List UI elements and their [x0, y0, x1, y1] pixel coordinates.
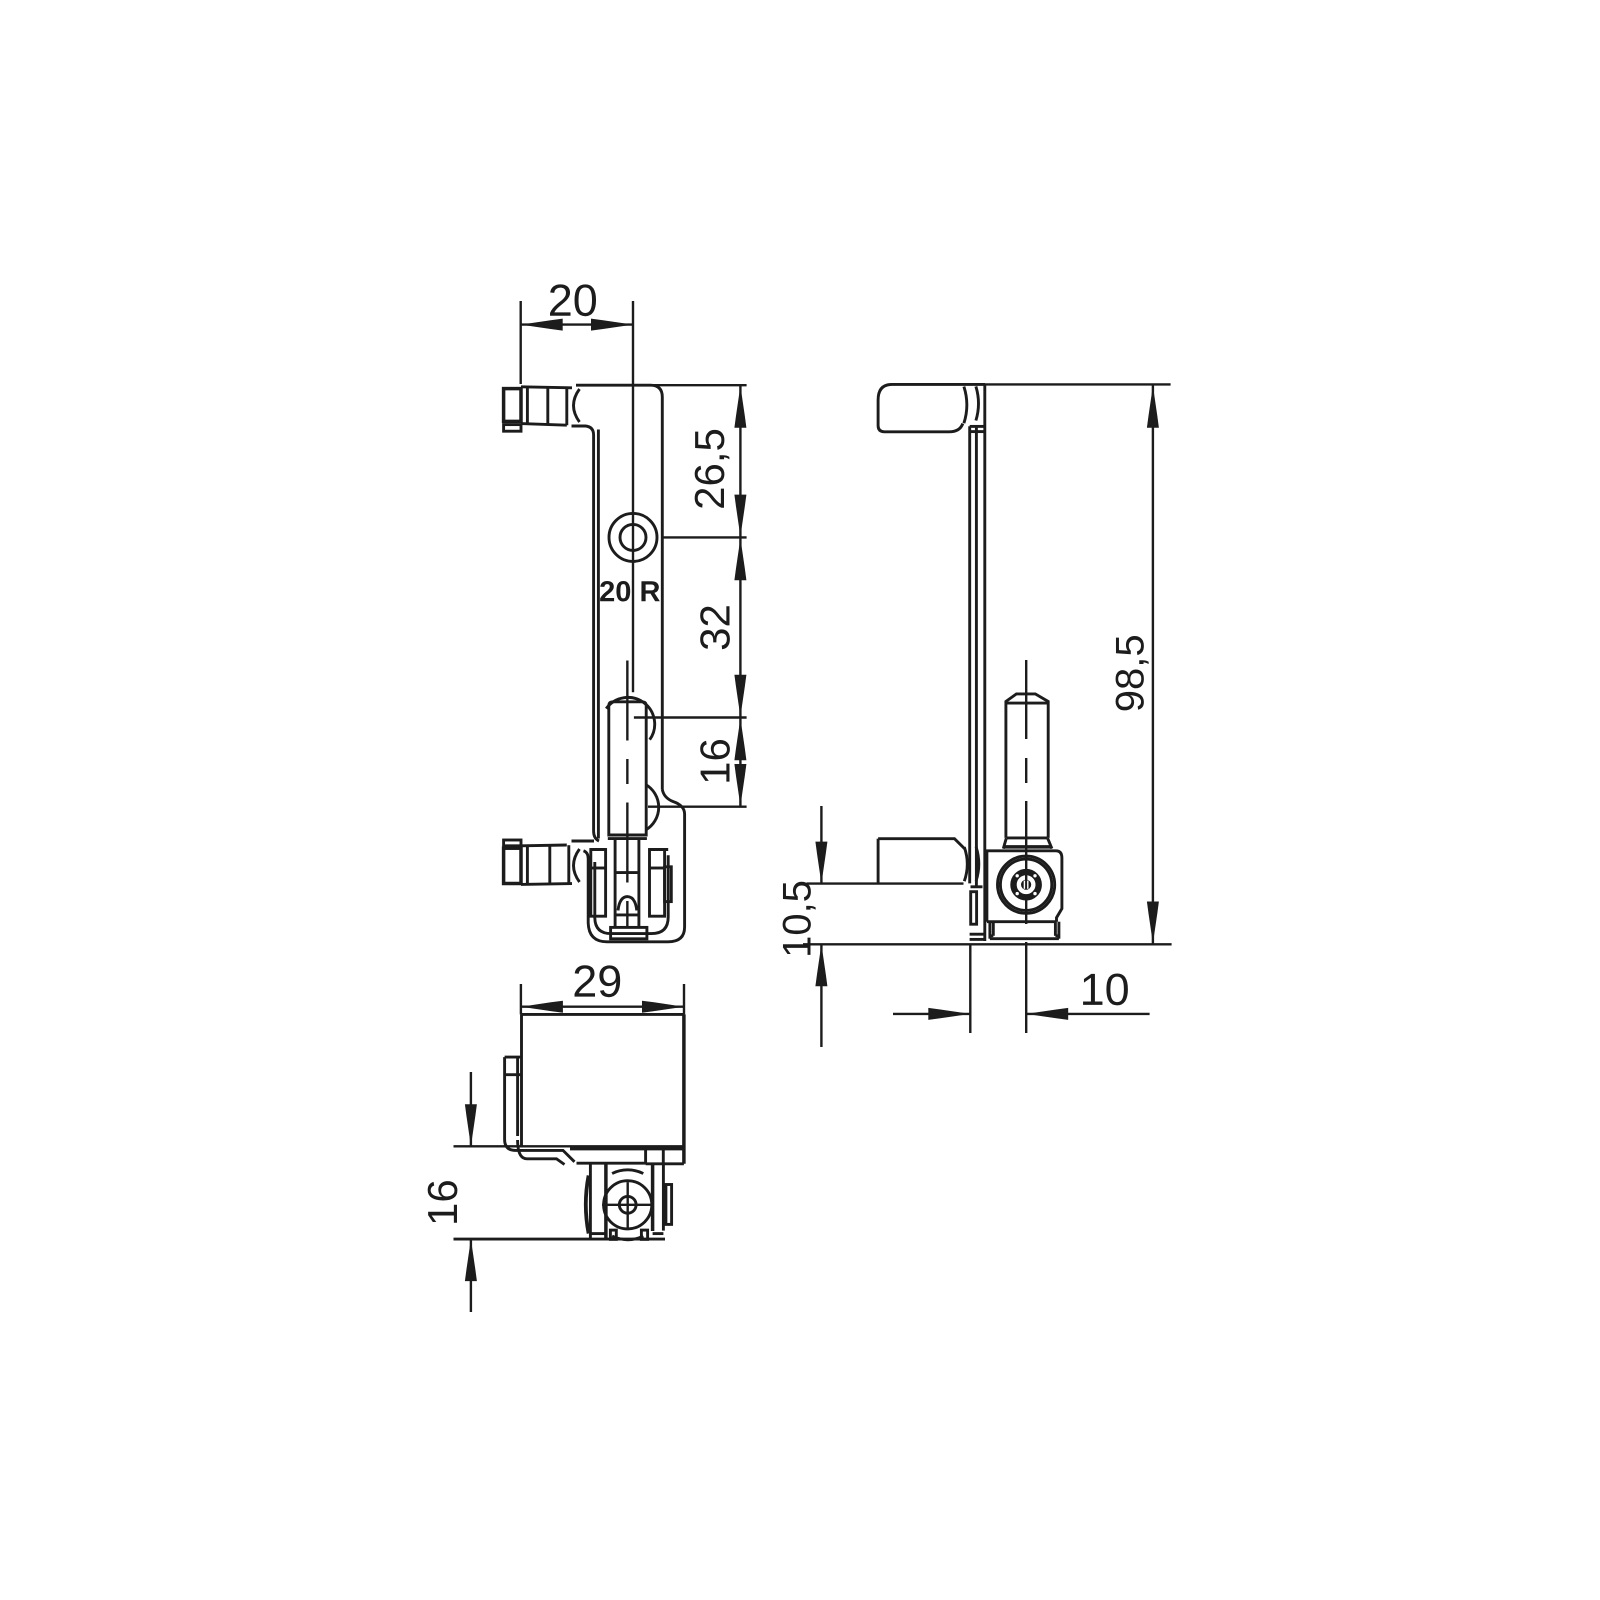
- svg-text:16: 16: [419, 1179, 466, 1226]
- svg-text:98,5: 98,5: [1109, 634, 1153, 712]
- svg-text:20: 20: [548, 275, 598, 326]
- svg-text:26,5: 26,5: [686, 428, 733, 510]
- svg-text:29: 29: [572, 956, 622, 1007]
- svg-text:10: 10: [1080, 964, 1130, 1015]
- svg-text:10,5: 10,5: [776, 880, 820, 958]
- svg-text:20 R: 20 R: [599, 576, 660, 608]
- svg-text:16: 16: [692, 738, 739, 785]
- svg-text:32: 32: [692, 604, 739, 651]
